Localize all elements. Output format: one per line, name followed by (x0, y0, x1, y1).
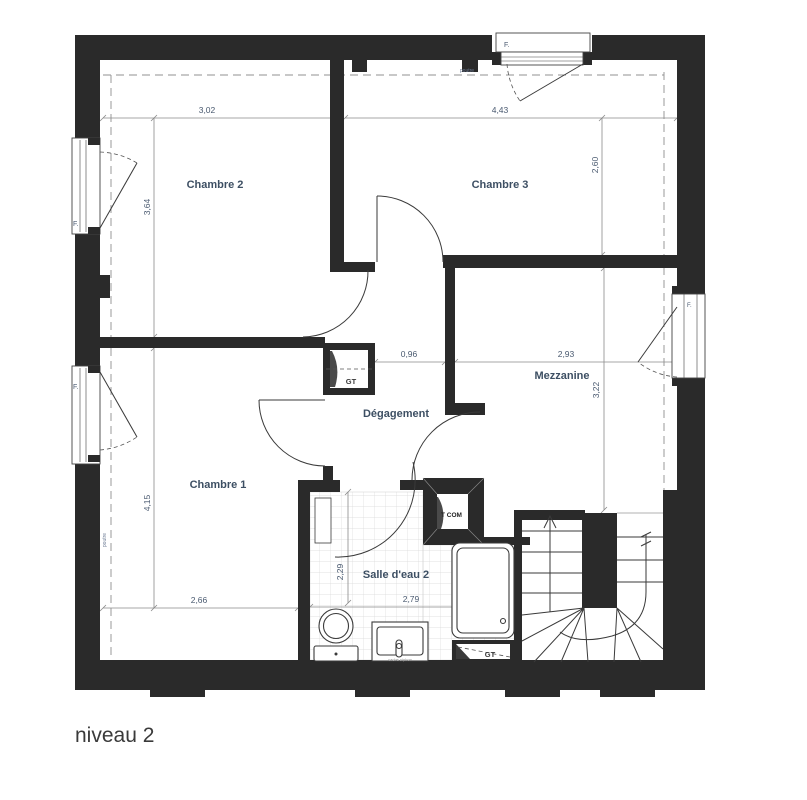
wall-bath-north-right (400, 480, 423, 490)
stair-treads-right (617, 537, 663, 582)
pier-top-1 (352, 60, 367, 72)
floor-plan-drawing: GT T COM GT F. F. (0, 0, 807, 800)
window-top: F. (492, 33, 592, 101)
room-label-chambre2: Chambre 2 (187, 179, 244, 191)
poutre-label-top: poutre (460, 68, 474, 74)
window-label-right: F. (687, 303, 692, 309)
stair-void (582, 513, 617, 608)
window-left-upper: F. (72, 138, 137, 234)
wall-right-pad (663, 490, 677, 662)
beam-labels: poutre poutre (102, 68, 474, 547)
wall-stair-top (514, 510, 585, 520)
room-label-salledeau2: Salle d'eau 2 (363, 569, 429, 581)
dim-2-29: 2,29 (335, 563, 345, 580)
wall-top-left (75, 35, 492, 60)
window-label-left-lower: F. (73, 384, 79, 391)
wall-left-1 (75, 35, 100, 138)
dim-2-60: 2,60 (590, 156, 600, 173)
door-chambre2 (303, 270, 368, 337)
bath-niche (315, 498, 331, 543)
door-chambre3 (377, 196, 443, 262)
gt-label-bath: GT (485, 650, 496, 659)
stair-winders (522, 608, 663, 662)
room-label-chambre1: Chambre 1 (190, 479, 247, 491)
room-label-degagement: Dégagement (363, 408, 429, 420)
com-duct-box: T COM (423, 478, 484, 545)
dim-4-15: 4,15 (142, 494, 152, 511)
wall-stair-west (514, 520, 522, 662)
wall-right-1 (677, 35, 705, 286)
wall-chambre2-east (330, 60, 344, 262)
room-label-chambre3: Chambre 3 (472, 179, 529, 191)
window-swing-leaf (520, 64, 583, 101)
dim-3-22: 3,22 (591, 381, 601, 398)
wall-chambre3-south (443, 255, 677, 268)
dim-4-43: 4,43 (492, 105, 509, 115)
dim-0-96: 0,96 (401, 349, 418, 359)
dim-3-02: 3,02 (199, 105, 216, 115)
gt-duct-hall: GT (323, 343, 375, 395)
stair-treads-left (522, 531, 582, 593)
window-left-lower: F. (72, 366, 137, 464)
pier-left (100, 275, 110, 298)
cache-siphon-label: cache-siphon (388, 657, 412, 662)
wall-right-2 (677, 386, 705, 660)
com-label: T COM (441, 512, 462, 519)
wall-left-3 (75, 464, 100, 660)
wall-door-jamb (323, 466, 333, 482)
window-right: F. (638, 286, 705, 386)
door-chambre1 (259, 400, 325, 466)
wall-bath-north-left (298, 480, 340, 492)
wall-mezzanine-west (445, 268, 455, 405)
dim-2-79: 2,79 (403, 594, 420, 604)
dim-3-64: 3,64 (142, 198, 152, 215)
door-mezzanine (412, 412, 480, 480)
wall-chambre1-north (100, 337, 325, 348)
wall-bath-west (298, 480, 310, 662)
dim-2-93: 2,93 (558, 349, 575, 359)
page-title: niveau 2 (75, 724, 154, 747)
window-label-top: F. (504, 42, 510, 49)
window-label-left-upper: F. (73, 221, 79, 228)
wall-left-2 (75, 234, 100, 366)
gt-duct-bath: GT (452, 640, 514, 662)
gt-label-hall: GT (346, 377, 357, 386)
shower-tray (452, 543, 514, 638)
room-label-mezzanine: Mezzanine (534, 370, 589, 382)
wall-bottom (75, 660, 705, 690)
dim-2-66: 2,66 (191, 595, 208, 605)
floor-plan-page: GT T COM GT F. F. (0, 0, 807, 800)
vanity-sink: cache-siphon (372, 622, 428, 662)
poutre-label-left: poutre (102, 533, 108, 547)
